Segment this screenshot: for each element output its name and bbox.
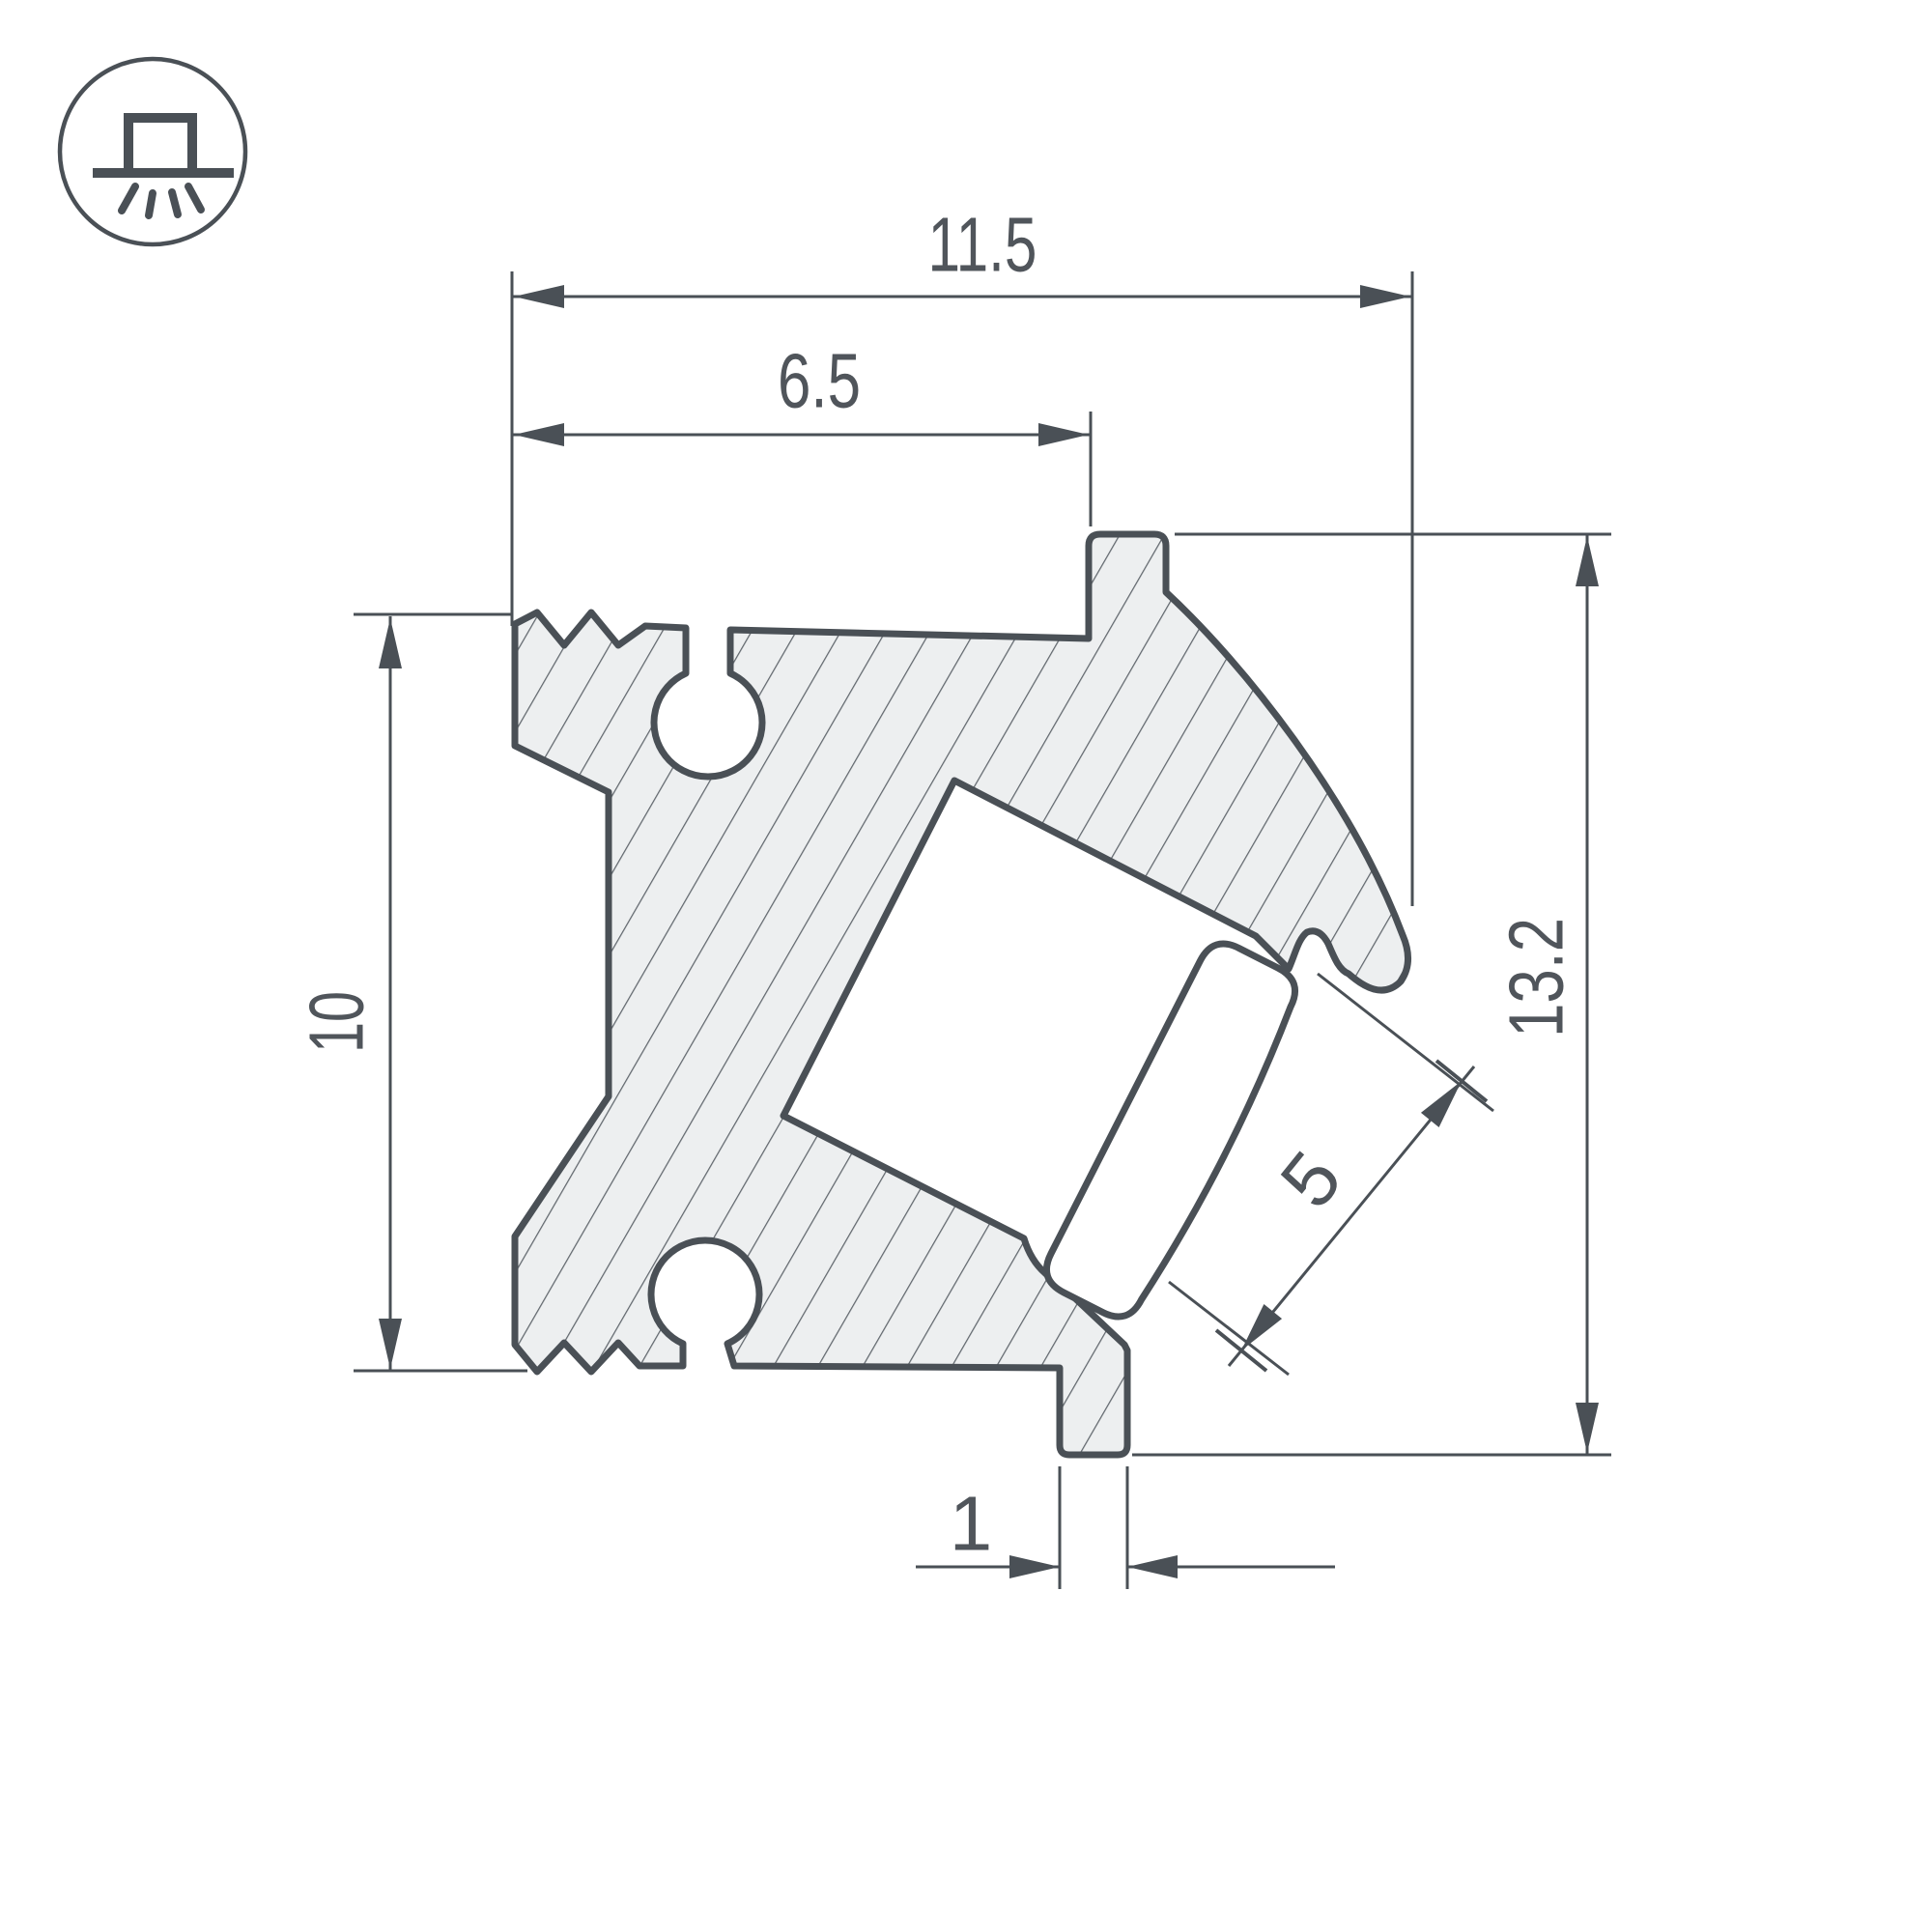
arrowhead-left: [1009, 1555, 1060, 1578]
extension-line: [1169, 1282, 1289, 1375]
dimension-inner-width: 6.5: [512, 338, 1091, 527]
dim-label-right-height: 13.2: [1493, 918, 1579, 1037]
arrowhead-bottom: [1576, 1403, 1599, 1453]
dim-label-inner-width: 6.5: [778, 338, 861, 424]
arrowhead-top: [1576, 536, 1599, 586]
dim-label-foot-width: 1: [950, 1481, 993, 1567]
arrowhead-left: [514, 285, 564, 308]
dimension-foot-width: 1: [916, 1466, 1335, 1589]
arrowhead-right: [1360, 285, 1410, 308]
extension-line: [1318, 974, 1493, 1111]
icon-fixture-box: [128, 118, 192, 173]
arrowhead-right: [1127, 1555, 1178, 1578]
dim-label-left-height: 10: [294, 991, 380, 1053]
diffuser-lens: [1037, 935, 1311, 1329]
drawing-canvas: 11.5 6.5 10 13.2 5: [0, 0, 1932, 1932]
arrowhead-bottom: [379, 1319, 402, 1369]
mount-type-icon: [60, 59, 245, 244]
arrowhead-right: [1038, 423, 1089, 446]
profile-cross-section-drawing: 11.5 6.5 10 13.2 5: [0, 0, 1932, 1932]
dim-label-led-opening: 5: [1264, 1136, 1357, 1224]
dim-label-top-width: 11.5: [928, 202, 1037, 288]
arrowhead-left: [514, 423, 564, 446]
icon-circle: [60, 59, 245, 244]
dimension-left-height: 10: [294, 614, 528, 1371]
icon-light-rays: [122, 186, 201, 215]
arrowhead-top: [379, 618, 402, 668]
